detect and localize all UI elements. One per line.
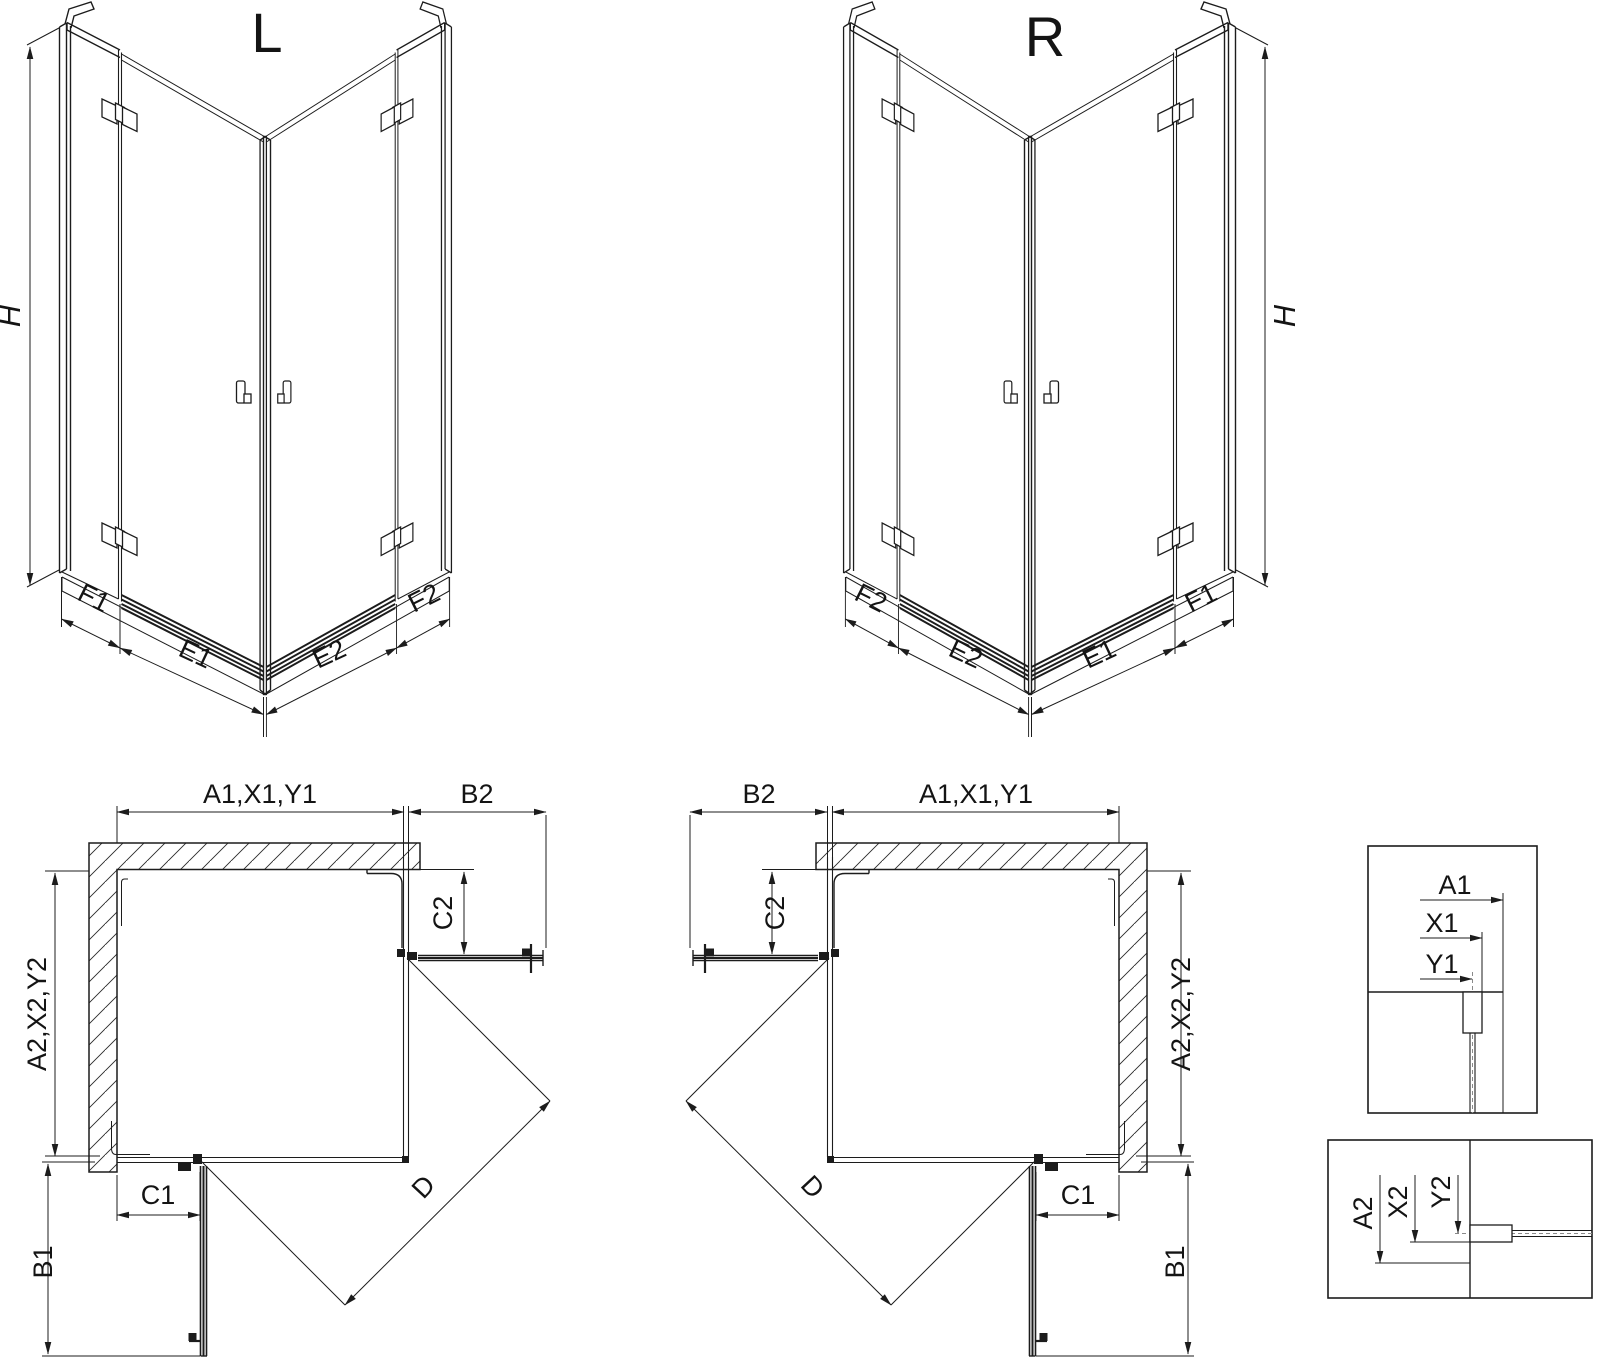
plan-view-left: A1,X1,Y1 B2 C2 A2,X2,Y2 C1 B1 D: [22, 779, 550, 1356]
plan-right-depth-label: A2,X2,Y2: [1166, 957, 1196, 1071]
detail-a1-label: A1: [1438, 870, 1471, 900]
detail-a2-label: A2: [1348, 1196, 1378, 1229]
iso-right-height-label: H: [1267, 304, 1302, 327]
plan-left-b1-label: B1: [28, 1245, 58, 1278]
plan-right-b1-label: B1: [1160, 1245, 1190, 1278]
detail-box-width: A1 X1 Y1: [1368, 846, 1537, 1113]
iso-right-f1-label: F1: [1180, 577, 1222, 618]
plan-right-c2-label: C2: [760, 896, 790, 931]
iso-right-f2-label: F2: [850, 577, 892, 618]
plan-left-d-label: D: [406, 1170, 441, 1205]
detail-y2-label: Y2: [1426, 1175, 1456, 1208]
plan-left-width-label: A1,X1,Y1: [203, 779, 317, 809]
detail-x1-label: X1: [1425, 908, 1458, 938]
iso-right-title: R: [1025, 5, 1065, 68]
plan-left-b2-label: B2: [460, 779, 493, 809]
iso-left-title: L: [251, 1, 282, 64]
shower-enclosure-drawing: L H F1 E1 E2 F2 R H F2 E2 E1 F1 A1,X1,Y1…: [0, 0, 1600, 1366]
detail-box-depth: A2 X2 Y2: [1328, 1140, 1592, 1298]
detail-x2-label: X2: [1383, 1185, 1413, 1218]
plan-right-b2-label: B2: [742, 779, 775, 809]
plan-right-c1-label: C1: [1061, 1180, 1096, 1210]
detail-y1-label: Y1: [1425, 949, 1458, 979]
iso-view-left: L H F1 E1 E2 F2: [0, 1, 451, 737]
iso-left-f2-label: F2: [403, 577, 445, 618]
technical-drawing-page: L H F1 E1 E2 F2 R H F2 E2 E1 F1 A1,X1,Y1…: [0, 0, 1600, 1366]
plan-left-depth-label: A2,X2,Y2: [22, 957, 52, 1071]
walls-hatched: [89, 843, 420, 1172]
iso-left-f1-label: F1: [73, 577, 115, 618]
iso-left-height-label: H: [0, 304, 27, 327]
plan-left-c2-label: C2: [428, 896, 458, 931]
plan-right-width-label: A1,X1,Y1: [919, 779, 1033, 809]
iso-view-right: R H F2 E2 E1 F1: [844, 2, 1302, 737]
plan-right-d-label: D: [795, 1170, 830, 1205]
plan-view-right: B2 A1,X1,Y1 C2 A2,X2,Y2 C1 B1 D: [686, 779, 1196, 1356]
walls-hatched: [816, 843, 1147, 1172]
plan-left-c1-label: C1: [141, 1180, 176, 1210]
